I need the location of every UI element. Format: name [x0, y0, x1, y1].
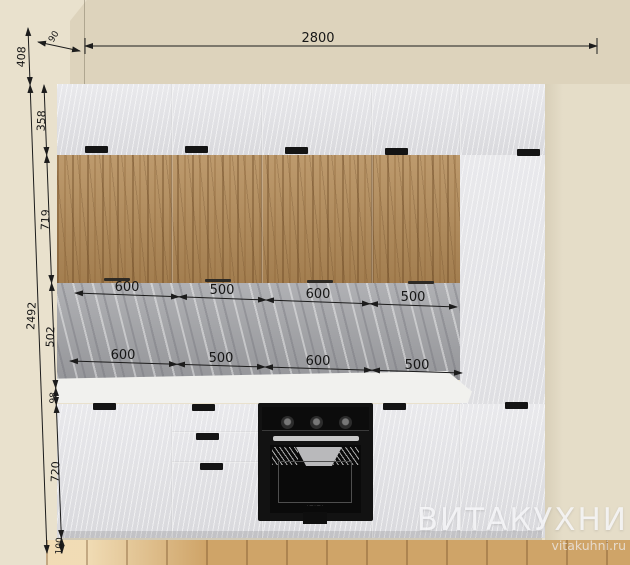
dim-lower-500b: 500 — [405, 358, 430, 373]
dim-overall-width: 2800 — [301, 31, 334, 46]
dim-backsplash: 502 — [43, 326, 57, 348]
dimension-overlay: 2800 90 408 2492 358 719 502 98 720 100 … — [0, 0, 630, 565]
dim-line-90 — [38, 42, 80, 51]
dim-plinth: 100 — [55, 537, 66, 555]
dim-upper-500b: 500 — [401, 290, 426, 305]
dim-upper-600b: 600 — [306, 287, 331, 302]
dim-base-cabinet: 720 — [48, 461, 62, 483]
dim-overall-height: 2492 — [24, 301, 38, 330]
dim-upper-500a: 500 — [210, 283, 235, 298]
dim-countertop: 98 — [49, 392, 60, 404]
dim-upper-600a: 600 — [115, 280, 140, 295]
dim-lower-600a: 600 — [111, 348, 136, 363]
dim-wood-doors: 719 — [38, 209, 52, 231]
kitchen-elevation-render: ·—·—· 2800 90 408 2492 358 719 502 — [0, 0, 630, 565]
dim-lower-600b: 600 — [306, 354, 331, 369]
dim-top-offset: 408 — [14, 46, 28, 68]
dim-lower-500a: 500 — [209, 351, 234, 366]
dim-wall-gap: 90 — [47, 29, 62, 44]
dim-upper-cabinet: 358 — [34, 110, 48, 132]
